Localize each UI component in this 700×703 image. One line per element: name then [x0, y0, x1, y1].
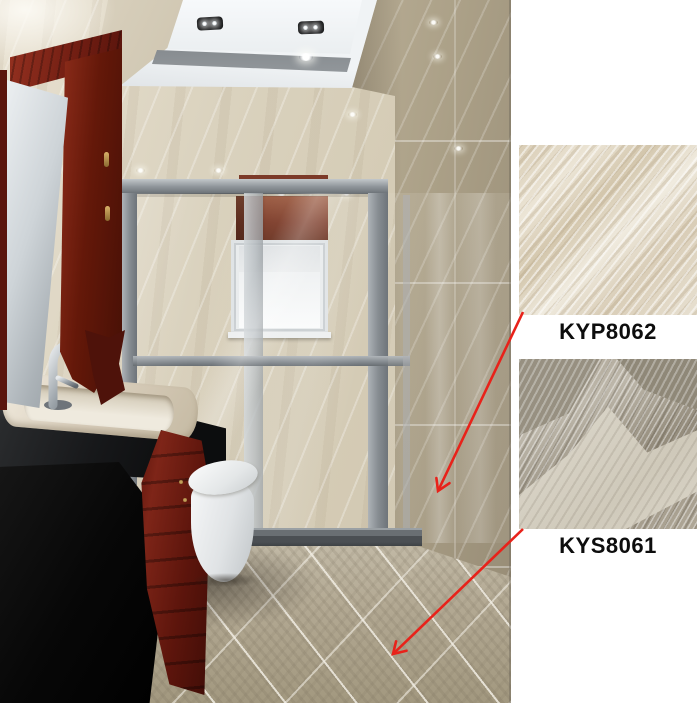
mirror-frame — [0, 70, 7, 410]
shower-glass — [388, 193, 511, 543]
tile-promo-image: KYP8062 KYS8061 — [0, 0, 700, 703]
light-dot — [202, 21, 207, 26]
cabinet-handle — [105, 206, 110, 221]
wall-light-reflection — [454, 146, 463, 151]
light-dot — [212, 21, 217, 26]
tile-code-label: KYP8062 — [519, 319, 697, 345]
cabinet-knob — [183, 498, 187, 502]
tile-sample-wall: KYP8062 — [519, 145, 697, 345]
shower-post-right — [368, 193, 388, 545]
cabinet-knob — [179, 480, 183, 484]
tile-swatch-kyp8062 — [519, 145, 697, 315]
ceiling-downlight — [299, 53, 313, 61]
bathroom-render — [0, 0, 511, 703]
cabinet-handle — [104, 152, 109, 167]
wall-light-reflection — [348, 112, 357, 117]
wall-light-reflection — [429, 20, 438, 25]
shower-header-bar — [119, 179, 388, 194]
light-dot — [313, 25, 318, 30]
wall-light-reflection — [136, 168, 145, 173]
tile-sample-floor: KYS8061 — [519, 359, 697, 559]
wall-light-reflection — [214, 168, 223, 173]
tile-code-label: KYS8061 — [519, 533, 697, 559]
tile-swatch-kys8061 — [519, 359, 697, 529]
light-dot — [303, 25, 308, 30]
product-panel: KYP8062 KYS8061 — [511, 0, 700, 703]
ceiling-spotlight — [298, 21, 324, 35]
wall-light-reflection — [433, 54, 442, 59]
toilet-shadow — [193, 573, 259, 587]
ceiling-spotlight — [197, 16, 224, 30]
